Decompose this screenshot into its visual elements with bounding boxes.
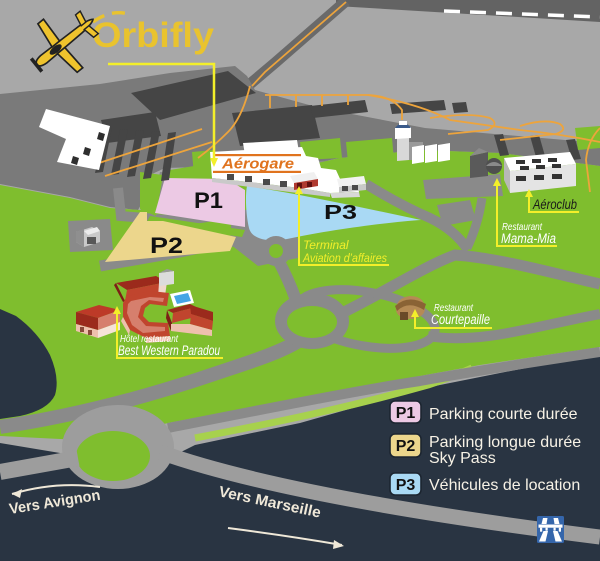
svg-text:P3: P3 (324, 202, 357, 224)
svg-text:P1: P1 (194, 188, 223, 213)
svg-text:Aéroclub: Aéroclub (532, 197, 577, 212)
svg-text:Courtepaille: Courtepaille (431, 312, 490, 327)
svg-text:Aérogare: Aérogare (221, 157, 294, 173)
svg-text:Best Western Paradou: Best Western Paradou (118, 343, 220, 358)
svg-text:Véhicules de location: Véhicules de location (429, 477, 580, 494)
svg-text:Parking longue durée: Parking longue durée (429, 434, 581, 451)
svg-text:Aviation d’affaires: Aviation d’affaires (302, 251, 387, 265)
svg-text:Mama-Mia: Mama-Mia (501, 231, 556, 246)
svg-text:Parking courte durée: Parking courte durée (429, 406, 578, 423)
svg-text:P3: P3 (396, 477, 416, 494)
svg-text:P1: P1 (396, 405, 416, 422)
svg-text:P2: P2 (396, 438, 416, 455)
svg-text:Orbifly: Orbifly (92, 16, 215, 55)
svg-text:Sky Pass: Sky Pass (429, 450, 496, 467)
svg-text:Terminal: Terminal (303, 238, 349, 252)
svg-text:P2: P2 (150, 233, 183, 258)
